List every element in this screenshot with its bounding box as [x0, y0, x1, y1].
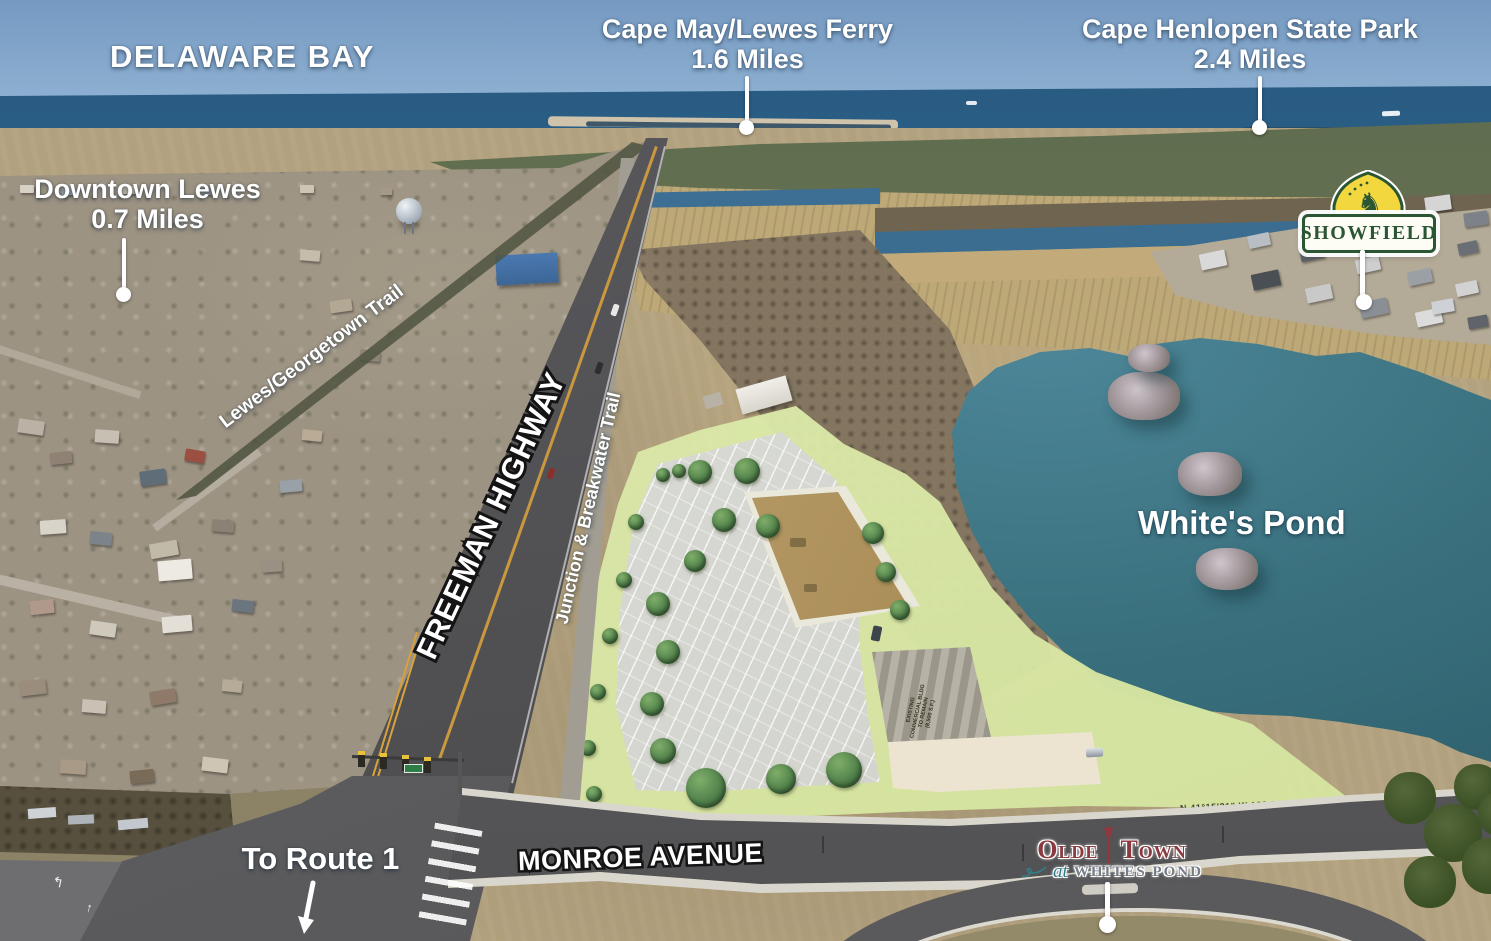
whites-pond-label: White's Pond [1138, 505, 1346, 542]
showfield-leader-dot [1356, 294, 1372, 310]
cape-may-ferry-leader-line [745, 76, 749, 124]
cape-henlopen-leader-dot [1252, 120, 1267, 135]
cape-may-ferry-label: Cape May/Lewes Ferry 1.6 Miles [555, 14, 940, 74]
to-route-1-arrow [294, 880, 326, 936]
cape-may-ferry-distance: 1.6 Miles [555, 44, 940, 74]
cape-henlopen-label: Cape Henlopen State Park 2.4 Miles [1030, 14, 1470, 74]
olde-town-word-right: Town [1120, 837, 1186, 863]
cape-henlopen-title: Cape Henlopen State Park [1030, 14, 1470, 44]
showfield-leader-line [1360, 250, 1365, 298]
downtown-lewes-label: Downtown Lewes 0.7 Miles [15, 174, 280, 234]
showfield-plaque: SHOWFIELD [1302, 214, 1436, 253]
showfield-name: SHOWFIELD [1301, 222, 1438, 245]
olde-town-logo: Olde Town at WHITES POND [1012, 826, 1212, 883]
aerial-site-map: EXISTING COMMERCIAL BLDG TO REMAIN (8,50… [0, 0, 1491, 941]
evergreen-tree [1404, 856, 1456, 908]
olde-town-leader-line [1105, 882, 1110, 920]
corner-evergreens [0, 0, 1491, 941]
cape-henlopen-leader-line [1258, 76, 1262, 124]
olde-town-leader-dot [1099, 916, 1116, 933]
olde-town-word-left: Olde [1037, 837, 1098, 863]
downtown-lewes-leader-dot [116, 287, 131, 302]
downtown-lewes-leader-line [122, 238, 126, 290]
lamppost-icon [1103, 826, 1115, 864]
showfield-logo: ♞ SHOWFIELD [1298, 170, 1438, 250]
cape-may-ferry-title: Cape May/Lewes Ferry [555, 14, 940, 44]
flourish-icon [1021, 865, 1047, 879]
to-route-1-label: To Route 1 [228, 842, 413, 877]
cape-may-ferry-leader-dot [739, 120, 754, 135]
olde-town-line2: WHITES POND [1074, 864, 1203, 881]
olde-town-connector: at [1053, 861, 1068, 883]
cape-henlopen-distance: 2.4 Miles [1030, 44, 1470, 74]
delaware-bay-label: DELAWARE BAY [110, 40, 375, 75]
downtown-lewes-title: Downtown Lewes [15, 174, 280, 204]
downtown-lewes-distance: 0.7 Miles [15, 204, 280, 234]
